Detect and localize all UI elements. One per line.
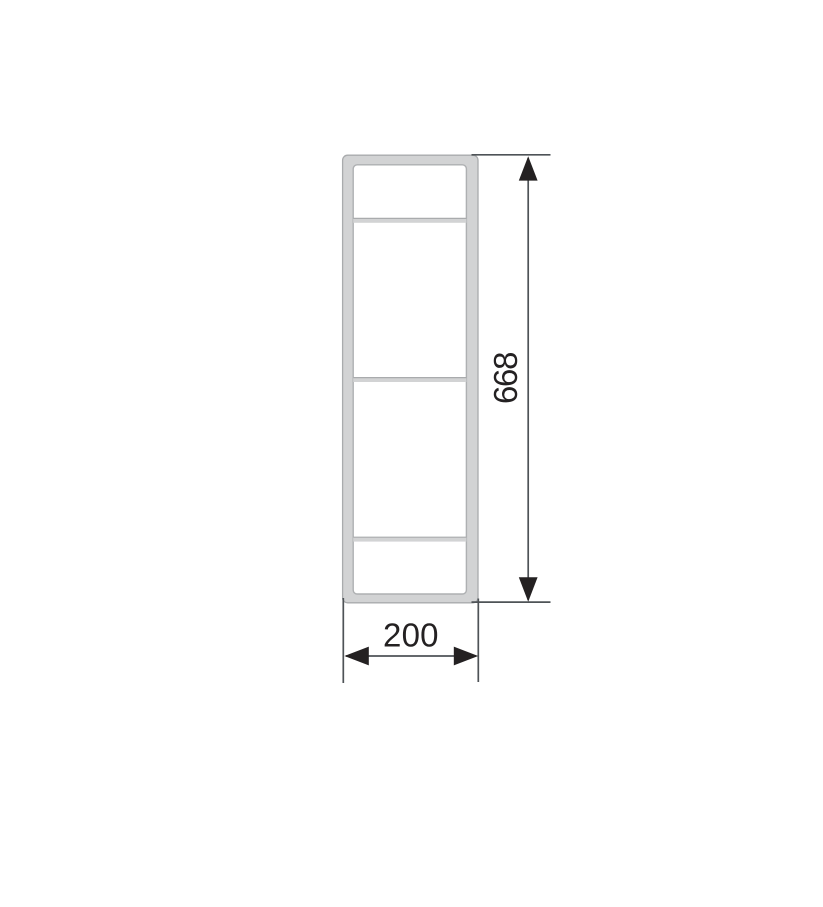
svg-text:668: 668	[487, 352, 524, 405]
svg-text:200: 200	[383, 616, 439, 653]
